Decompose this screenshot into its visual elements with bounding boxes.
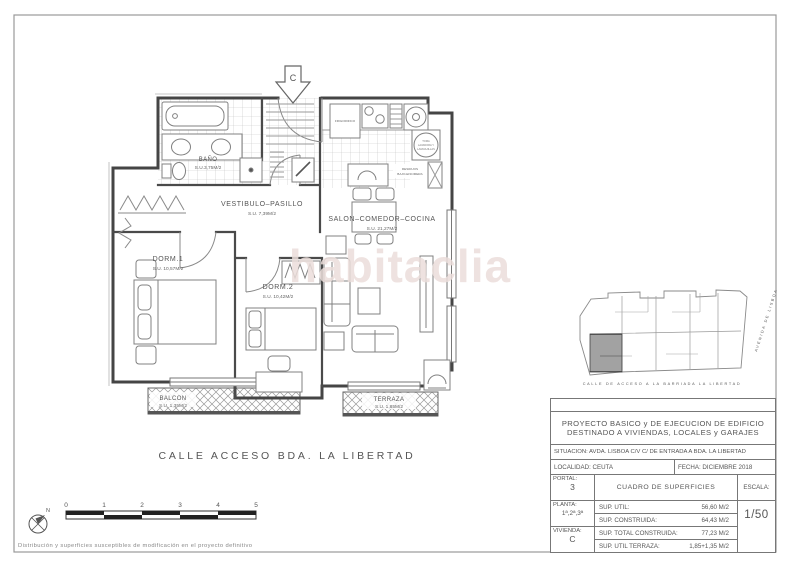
svg-text:S.U. 1,85M/2: S.U. 1,85M/2 (375, 404, 403, 410)
vivienda-cell: VIVIENDA: C (551, 527, 594, 552)
sink-right (212, 139, 231, 155)
plan-sheet: C (0, 0, 800, 565)
svg-text:S.U. 7,39M/2: S.U. 7,39M/2 (248, 211, 276, 217)
svg-text:S.U. 10,57M/2: S.U. 10,57M/2 (153, 266, 184, 272)
svg-text:3: 3 (178, 502, 182, 509)
fecha-cell: FECHA: DICIEMBRE 2018 (675, 460, 775, 474)
apartment-plan: C (109, 66, 511, 417)
surface-row: SUP. CONSTRUIDA: 64,43 M/2 (595, 514, 737, 527)
room-label-bano: BAÑO (199, 156, 218, 163)
svg-text:RESIDUOS: RESIDUOS (402, 167, 418, 171)
localidad-cell: LOCALIDAD: CEUTA (551, 460, 675, 474)
svg-text:BAJO-ENCIMERA: BAJO-ENCIMERA (397, 172, 423, 176)
svg-text:4: 4 (216, 502, 220, 509)
ac-unit (424, 360, 450, 390)
svg-text:0: 0 (64, 502, 68, 509)
chair (376, 188, 394, 200)
hall-closet (118, 196, 186, 248)
toilet (173, 163, 186, 180)
watermark: habitaclia (289, 240, 511, 292)
kitchen-island (348, 164, 388, 186)
svg-text:2: 2 (140, 502, 144, 509)
svg-text:S.U. 21,27M/2: S.U. 21,27M/2 (367, 226, 398, 232)
highlighted-unit (590, 334, 622, 372)
fridge-label: FRIGORIFICO (335, 119, 356, 123)
project-title-line1: PROYECTO BASICO y DE EJECUCION DE EDIFIC… (562, 419, 764, 428)
surface-table-title: CUADRO DE SUPERFICIES (595, 475, 737, 501)
terrace-railing (343, 413, 438, 417)
surface-row: SUP. TOTAL CONSTRUIDA: 77,23 M/2 (595, 527, 737, 540)
balcony-railing (148, 411, 300, 415)
desk-chair (268, 356, 290, 371)
svg-text:5: 5 (254, 502, 258, 509)
nightstand (136, 346, 156, 364)
disclaimer-text: Distribución y superficies susceptibles … (18, 543, 252, 549)
room-label-balcon: BALCON (159, 396, 186, 402)
svg-text:S.U.3,75M/2: S.U.3,75M/2 (195, 165, 222, 171)
dorm1-furniture (134, 260, 216, 364)
site-avenue-label: AVENIDA DE LISBOA (754, 288, 778, 352)
localidad-fecha-row: LOCALIDAD: CEUTA FECHA: DICIEMBRE 2018 (551, 460, 775, 475)
room-label-terraza: TERRAZA (374, 397, 405, 403)
room-label-dorm1: DORM.1 (153, 256, 184, 263)
svg-text:TOMA: TOMA (422, 139, 430, 143)
situacion-row: SITUACION: AVDA. LISBOA C/V C/ DE ENTRAD… (551, 445, 775, 460)
escala-label: ESCALA: (738, 475, 775, 501)
toilet-tank (162, 164, 171, 178)
surface-table: CUADRO DE SUPERFICIES SUP. UTIL: 56,60 M… (595, 475, 738, 552)
entry-letter: C (290, 73, 297, 83)
north-label: N (46, 508, 50, 514)
svg-text:1: 1 (102, 502, 106, 509)
entry-arrow: C (276, 66, 310, 103)
portal-cell: PORTAL: 3 (551, 475, 594, 501)
planta-cell: PLANTA: 1ª,2ª,3ª (551, 501, 594, 527)
room-label-dorm2: DORM.2 (263, 284, 294, 291)
street-label: CALLE ACCESO BDA. LA LIBERTAD (158, 450, 415, 462)
svg-text:LAVADORA Y: LAVADORA Y (418, 143, 434, 147)
side-table (324, 332, 344, 350)
scale-bar: 0 1 2 3 4 5 (64, 502, 258, 519)
title-block-empty-row (551, 399, 775, 412)
svg-text:S.U. 10,42M/2: S.U. 10,42M/2 (263, 294, 294, 300)
chair (353, 188, 371, 200)
surface-row: SUP. UTIL: 56,60 M/2 (595, 501, 737, 514)
title-block-left-column: PORTAL: 3 PLANTA: 1ª,2ª,3ª VIVIENDA: C (551, 475, 595, 552)
sink-left (172, 139, 191, 155)
surface-row: SUP. UTIL TERRAZA: 1,85+1,35 M/2 (595, 540, 737, 552)
title-block-main: PORTAL: 3 PLANTA: 1ª,2ª,3ª VIVIENDA: C C… (551, 475, 775, 552)
escala-value: 1/50 (738, 501, 775, 552)
title-block: PROYECTO BASICO y DE EJECUCION DE EDIFIC… (550, 398, 776, 553)
svg-text:LAVAVAJILLAS: LAVAVAJILLAS (417, 147, 435, 151)
desk (256, 372, 302, 392)
north-arrow: N (29, 508, 50, 533)
escala-column: ESCALA: 1/50 (738, 475, 775, 552)
project-title-line2: DESTINADO A VIVIENDAS, LOCALES y GARAJES (567, 428, 759, 437)
room-label-vestibulo: VESTIBULO–PASILLO (221, 201, 303, 208)
project-title: PROYECTO BASICO y DE EJECUCION DE EDIFIC… (551, 412, 775, 445)
svg-text:S.U. 1,35M/2: S.U. 1,35M/2 (159, 403, 187, 409)
room-label-salon: SALON–COMEDOR–COCINA (328, 216, 435, 223)
site-plan: CALLE DE ACCESO A LA BARRIADA LA LIBERTA… (580, 288, 778, 386)
site-street-label: CALLE DE ACCESO A LA BARRIADA LA LIBERTA… (583, 382, 742, 386)
